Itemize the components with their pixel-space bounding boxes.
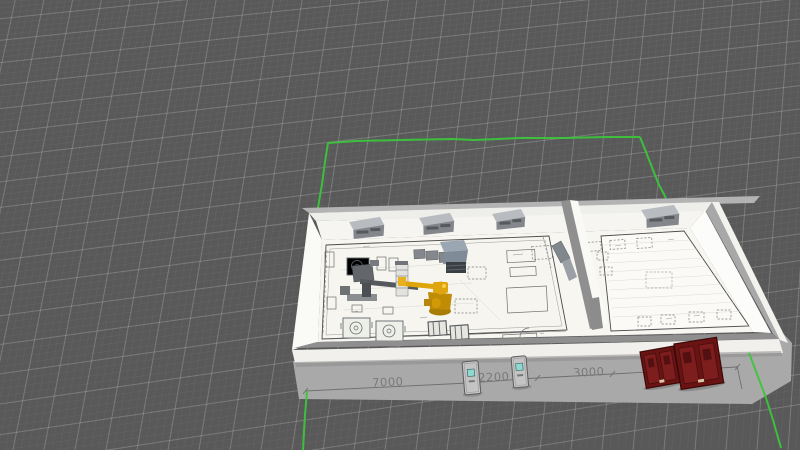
- dimension-label-7000: 7000: [372, 374, 404, 389]
- panel-screen: [516, 363, 524, 371]
- dimension-label-2200: 2200: [478, 369, 510, 384]
- machine-pump-1[interactable]: [340, 318, 373, 338]
- crate-2[interactable]: [450, 325, 469, 340]
- machine-pump-2[interactable]: [376, 321, 406, 341]
- panel-screen: [467, 369, 475, 377]
- viewport-3d[interactable]: 7000 2200 3000: [0, 0, 800, 450]
- crate-1[interactable]: [428, 321, 447, 336]
- scene-canvas[interactable]: 7000 2200 3000: [0, 0, 800, 450]
- dimension-label-3000: 3000: [573, 364, 605, 379]
